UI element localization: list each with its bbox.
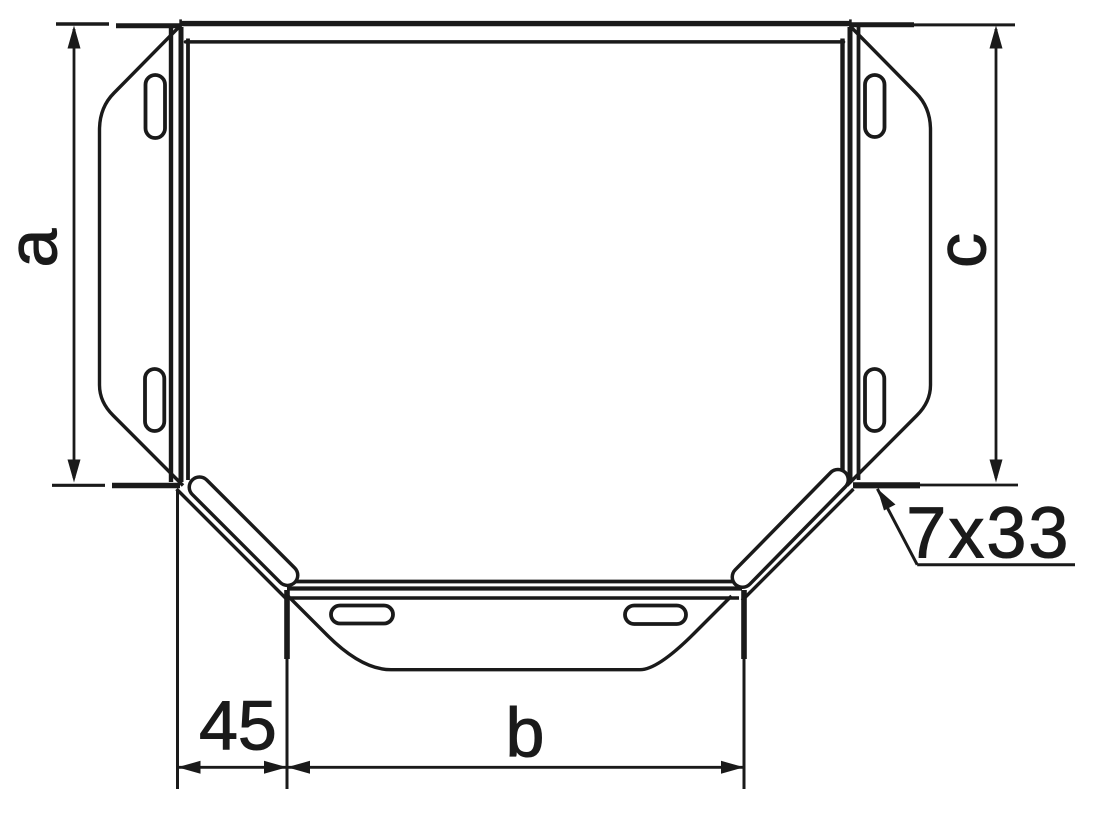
svg-text:45: 45 <box>199 687 277 765</box>
svg-text:c: c <box>923 233 1001 268</box>
svg-text:7x33: 7x33 <box>906 494 1070 574</box>
svg-text:a: a <box>0 229 72 268</box>
svg-text:b: b <box>506 694 545 772</box>
